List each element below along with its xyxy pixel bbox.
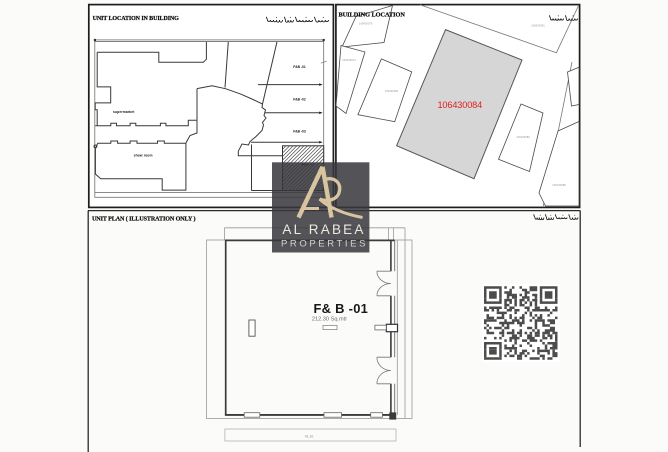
svg-text:212.30 Sq.mtr: 212.30 Sq.mtr xyxy=(312,317,347,323)
svg-text:106430088: 106430088 xyxy=(552,183,566,187)
svg-text:BUILDING LOCATION: BUILDING LOCATION xyxy=(339,11,406,18)
svg-text:F&B -01: F&B -01 xyxy=(293,65,306,69)
svg-text:F& B -01: F& B -01 xyxy=(313,301,368,316)
svg-text:106430084: 106430084 xyxy=(437,100,482,110)
svg-text:41.10: 41.10 xyxy=(305,434,314,438)
svg-text:106430081: 106430081 xyxy=(531,23,545,27)
svg-text:show room: show room xyxy=(134,154,153,158)
svg-text:PROPERTIES: PROPERTIES xyxy=(281,239,368,250)
svg-text:UNIT PLAN ( ILLUSTRATION ONLY: UNIT PLAN ( ILLUSTRATION ONLY ) xyxy=(92,215,195,222)
svg-text:UNIT LOCATION IN BUILDING: UNIT LOCATION IN BUILDING xyxy=(93,16,180,22)
svg-text:106430086: 106430086 xyxy=(516,135,530,139)
svg-text:F&B -03: F&B -03 xyxy=(293,130,306,134)
svg-text:AL RABEA: AL RABEA xyxy=(282,222,365,237)
svg-text:supermarket: supermarket xyxy=(113,110,135,114)
svg-text:106430079: 106430079 xyxy=(359,22,373,26)
svg-text:106430073: 106430073 xyxy=(342,58,356,62)
svg-text:106430082: 106430082 xyxy=(385,89,399,93)
svg-text:F&B -02: F&B -02 xyxy=(293,98,306,102)
